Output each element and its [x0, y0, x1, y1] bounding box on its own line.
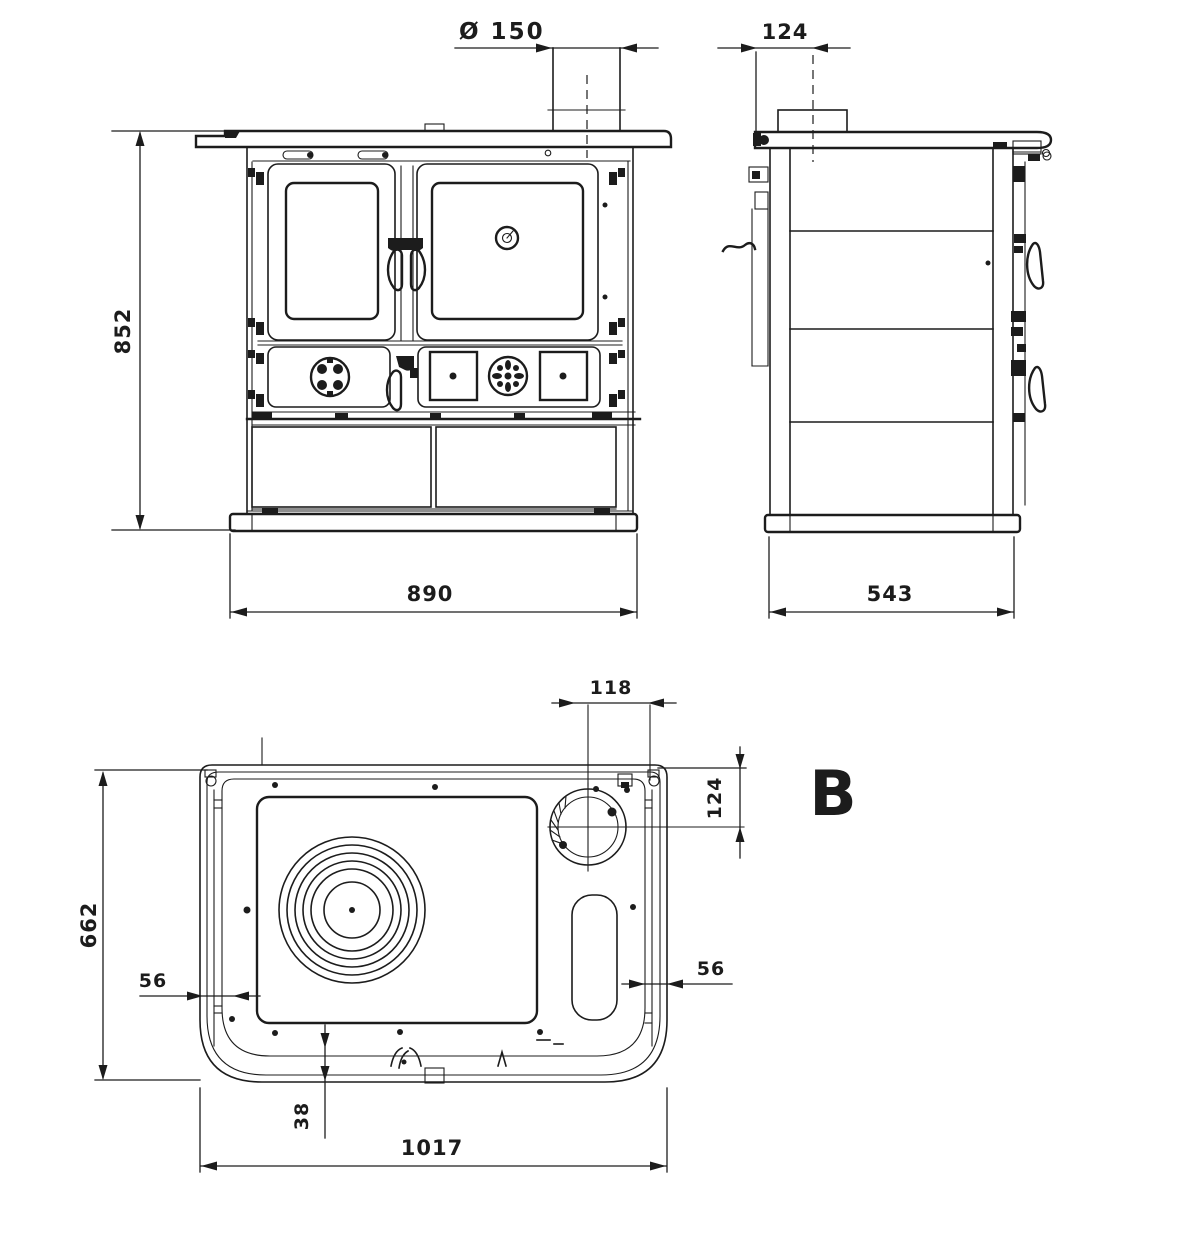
top-view: B — [77, 677, 857, 1172]
dim-label-top-depth: 662 — [77, 902, 101, 949]
dim-label-front-margin: 38 — [291, 1102, 313, 1130]
depth-dimension-543: 543 — [769, 537, 1014, 618]
oven-door — [417, 164, 608, 340]
damper-lever — [723, 243, 755, 251]
side-plinth — [765, 515, 1020, 532]
dim-arrow — [621, 44, 637, 53]
dim-label-depth: 543 — [867, 582, 914, 606]
width-dimension-890: 890 — [230, 534, 637, 618]
dim-label-flue-offset: 124 — [762, 20, 809, 44]
air-damper-rotary — [311, 358, 349, 396]
worktop-side — [753, 110, 1051, 157]
cooking-rings — [279, 837, 425, 983]
dim-label-right-margin: 56 — [697, 958, 725, 980]
dim-label-flue-x: 118 — [590, 677, 633, 699]
ash-door-panel — [268, 347, 390, 407]
lower-handle — [387, 356, 418, 410]
flue-diameter-dimension: Ø 150 — [455, 19, 658, 53]
screw — [545, 150, 551, 156]
front-body — [247, 147, 633, 514]
stove-dimension-drawing: Ø 150 852 — [0, 0, 1200, 1256]
flue-y-dimension-124: 124 — [658, 747, 746, 858]
door-handles — [388, 166, 425, 340]
wood-drawers — [247, 427, 633, 511]
width-dimension-1017: 1017 — [200, 1088, 667, 1172]
firebox-door-glass — [286, 183, 378, 319]
controls-row — [268, 347, 600, 410]
worktop-front — [196, 124, 671, 159]
front-rail — [247, 412, 640, 425]
upper-handle-side — [1027, 243, 1043, 288]
side-body — [770, 148, 1025, 515]
right-margin-dimension-56: 56 — [622, 958, 732, 989]
front-view: Ø 150 852 — [111, 19, 671, 618]
lower-handle-side — [1029, 367, 1045, 411]
drawer-left — [252, 427, 431, 507]
damper-lever-hardware — [723, 167, 768, 366]
dim-label-flue-diameter: Ø 150 — [459, 19, 545, 45]
drawer-right — [436, 427, 616, 507]
technical-drawing-page: Ø 150 852 — [0, 0, 1200, 1256]
rosette-knob — [489, 357, 527, 395]
front-hinges — [248, 168, 625, 407]
view-label-b: B — [809, 757, 856, 830]
dim-label-height: 852 — [111, 308, 135, 355]
dim-label-width: 890 — [407, 582, 454, 606]
dim-label-top-width: 1017 — [401, 1136, 463, 1160]
flue-offset-dimension: 124 — [718, 20, 850, 162]
oven-door-glass — [432, 183, 583, 319]
oven-thermometer — [496, 227, 518, 249]
side-handles — [1011, 141, 1051, 422]
clip-mark — [498, 1052, 506, 1066]
height-dimension-852: 852 — [111, 131, 235, 530]
dim-label-flue-y: 124 — [704, 777, 726, 820]
dim-label-left-margin: 56 — [139, 970, 167, 992]
depth-dimension-662: 662 — [77, 770, 207, 1080]
side-warming-slot — [572, 895, 617, 1020]
flue-pipe-front — [548, 48, 625, 158]
side-view: 124 — [718, 20, 1051, 618]
firebox-door — [268, 164, 395, 340]
hotplate — [257, 797, 537, 1023]
